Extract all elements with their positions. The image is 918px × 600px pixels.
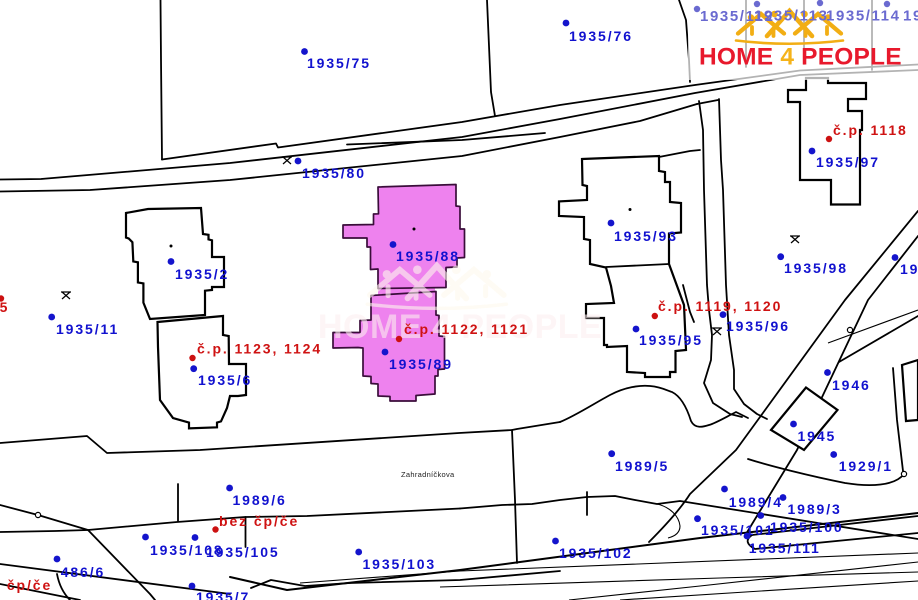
svg-text:č.p. 1123, 1124: č.p. 1123, 1124 bbox=[197, 341, 322, 357]
svg-text:1946: 1946 bbox=[832, 377, 871, 393]
svg-text:1935/88: 1935/88 bbox=[396, 248, 460, 264]
svg-text:1945: 1945 bbox=[798, 428, 837, 444]
svg-text:č.p. 1118: č.p. 1118 bbox=[833, 122, 908, 138]
svg-text:1935/7: 1935/7 bbox=[196, 589, 250, 600]
svg-text:1935/76: 1935/76 bbox=[569, 28, 633, 44]
svg-text:1989/6: 1989/6 bbox=[233, 492, 287, 508]
svg-text:1929/1: 1929/1 bbox=[839, 458, 893, 474]
svg-text:1935/102: 1935/102 bbox=[559, 545, 633, 561]
svg-text:bez čp/če: bez čp/če bbox=[219, 513, 299, 529]
svg-text:1935: 1935 bbox=[903, 8, 918, 25]
svg-text:1935/80: 1935/80 bbox=[302, 165, 366, 181]
svg-text:1935/98: 1935/98 bbox=[784, 260, 848, 276]
svg-text:bez čp/če: bez čp/če bbox=[0, 577, 52, 593]
svg-text:1935/103: 1935/103 bbox=[363, 556, 437, 572]
svg-text:1935: 1935 bbox=[900, 261, 918, 277]
svg-text:1935/97: 1935/97 bbox=[816, 154, 880, 170]
svg-text:1935/113: 1935/113 bbox=[754, 8, 829, 25]
svg-text:1935/93: 1935/93 bbox=[614, 228, 678, 244]
svg-text:1935/100: 1935/100 bbox=[770, 519, 844, 535]
svg-text:1935/89: 1935/89 bbox=[389, 356, 453, 372]
svg-text:486/6: 486/6 bbox=[61, 564, 106, 580]
svg-text:1935/101: 1935/101 bbox=[701, 522, 775, 538]
svg-text:1935/111: 1935/111 bbox=[749, 540, 821, 556]
svg-text:1989/4: 1989/4 bbox=[729, 494, 783, 510]
svg-text:č.p. 1119, 1120: č.p. 1119, 1120 bbox=[658, 298, 782, 314]
svg-text:1935/11: 1935/11 bbox=[56, 321, 119, 337]
svg-text:1935/95: 1935/95 bbox=[639, 332, 703, 348]
svg-text:Zahradníčkova: Zahradníčkova bbox=[401, 470, 455, 479]
svg-text:HOME 4 PEOPLE: HOME 4 PEOPLE bbox=[699, 44, 902, 71]
svg-text:1989/3: 1989/3 bbox=[788, 501, 842, 517]
svg-text:1935/6: 1935/6 bbox=[198, 372, 252, 388]
svg-text:1935/114: 1935/114 bbox=[826, 8, 901, 25]
svg-text:č.p. 1122, 1121: č.p. 1122, 1121 bbox=[404, 321, 529, 337]
svg-text:1935/2: 1935/2 bbox=[175, 266, 229, 282]
svg-text:1989/5: 1989/5 bbox=[615, 458, 669, 474]
svg-text:1935/96: 1935/96 bbox=[726, 318, 790, 334]
svg-text:1935/75: 1935/75 bbox=[307, 55, 371, 71]
svg-text:1935/105: 1935/105 bbox=[206, 544, 280, 560]
